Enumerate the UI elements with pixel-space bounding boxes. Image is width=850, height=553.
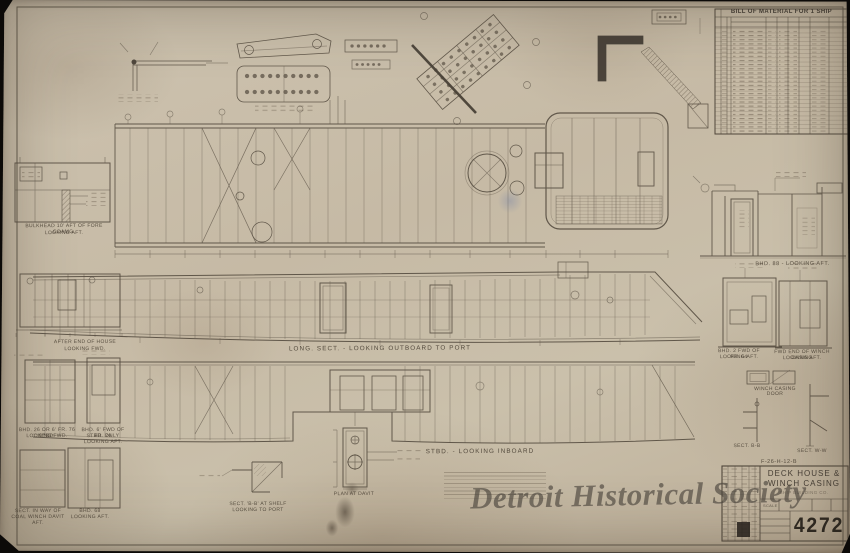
view-label-bhd-88: BHD. 88 - LOOKING AFT. xyxy=(745,261,840,268)
misc-small-detail xyxy=(558,262,588,278)
view-label-bhd-2fwd-2: LOOKING AFT. xyxy=(714,354,764,361)
drawing-number-stamp: 4272 xyxy=(793,514,845,538)
bill-of-material-grid xyxy=(715,9,848,134)
view-label-bhd-68-2: LOOKING AFT. xyxy=(70,514,110,520)
view-label-long-section: LONG. SECT. - LOOKING OUTBOARD TO PORT xyxy=(280,344,480,353)
view-label-sect-bb: SECT. B-B xyxy=(730,443,764,449)
drawing-ref-number: F-26-H-12-B xyxy=(755,459,803,466)
view-label-stbd-section: STBD. - LOOKING INBOARD xyxy=(420,448,540,456)
view-label-after-end-2: LOOKING FWD. xyxy=(45,346,125,353)
bill-of-material-title: BILL OF MATERIAL FOR 1 SHIP xyxy=(716,9,847,15)
bulkhead-fore-view xyxy=(15,157,110,222)
top-corner-details xyxy=(118,10,708,128)
view-label-sect-way-2: COAL WINCH DAVIT AFT. xyxy=(10,514,66,527)
blueprint-scan-page: BILL OF MATERIAL FOR 1 SHIP BULKHEAD 10'… xyxy=(0,0,850,553)
paper-sheet: BILL OF MATERIAL FOR 1 SHIP BULKHEAD 10'… xyxy=(0,0,850,553)
view-label-winch-door-2: DOOR xyxy=(753,391,797,397)
plan-at-davit-detail xyxy=(333,428,423,489)
view-label-sect-ww: SECT. W-W xyxy=(795,448,829,454)
bhd-88-view xyxy=(693,170,846,258)
view-label-plan-davit: PLAN AT DAVIT xyxy=(330,491,378,498)
winch-door-and-sections xyxy=(743,370,829,446)
long-section-view xyxy=(30,272,702,346)
plan-view xyxy=(115,96,668,258)
view-label-bhd-26-2: LOOKING FWD. xyxy=(16,433,78,440)
view-label-bhd-6fwd-2: STBD. ONLY LOOKING AFT. xyxy=(80,433,126,446)
archive-watermark: Detroit Historical Society xyxy=(470,473,807,516)
ink-stain xyxy=(498,188,522,214)
view-label-sect-shelf-2: LOOKING TO PORT xyxy=(226,507,290,514)
left-detail-views xyxy=(14,274,122,508)
view-label-fwd-end-2: LOOKING AFT. xyxy=(774,355,830,362)
bhd-2fwd-and-fwd-end-views xyxy=(718,262,832,348)
view-label-after-end: AFTER END OF HOUSE xyxy=(45,339,125,346)
shelf-section-detail xyxy=(196,462,282,492)
drawing-linework xyxy=(0,0,850,553)
view-label-bulkhead-fore-2: LOOKING AFT. xyxy=(14,230,114,237)
